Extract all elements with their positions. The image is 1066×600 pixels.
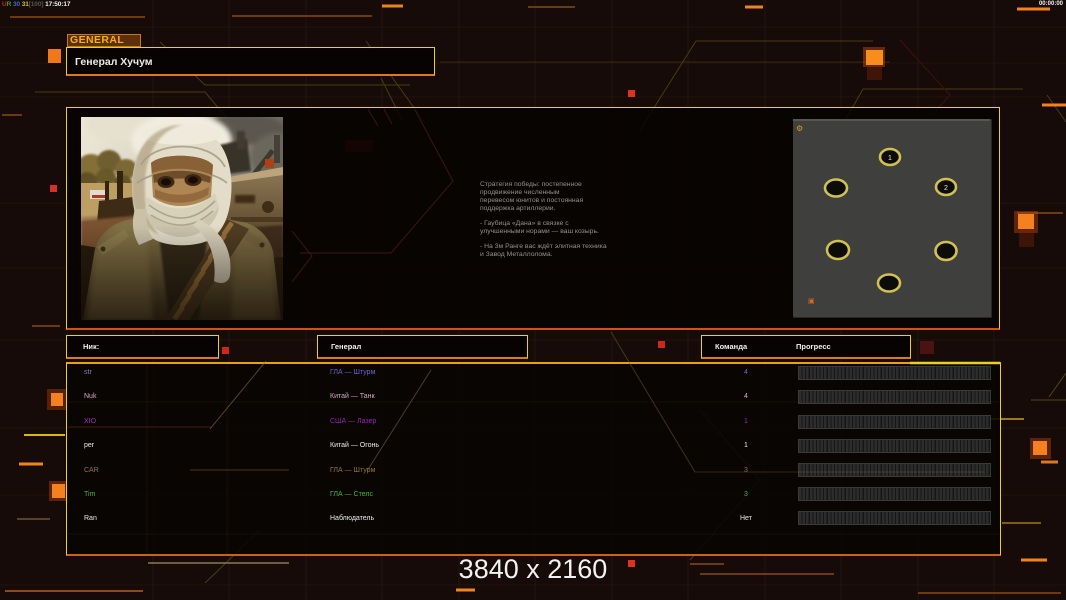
svg-text:1: 1	[888, 155, 892, 162]
svg-text:2: 2	[944, 185, 948, 192]
svg-text:⚙: ⚙	[796, 124, 803, 133]
svg-text:▣: ▣	[808, 298, 815, 305]
